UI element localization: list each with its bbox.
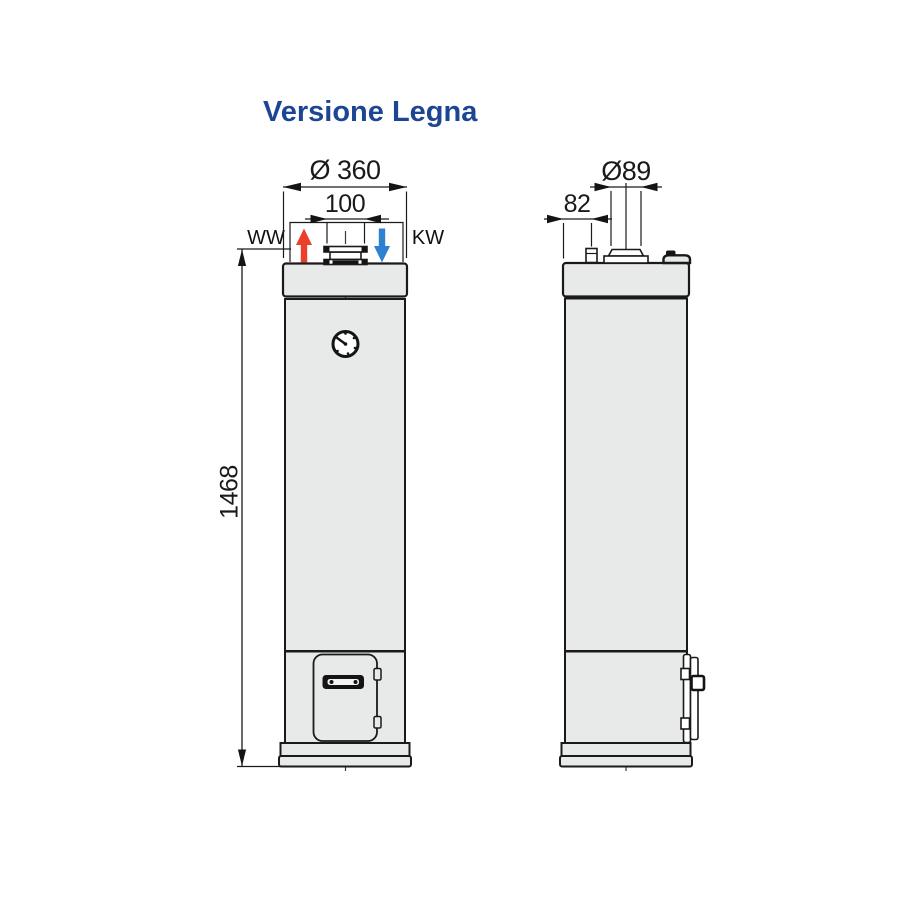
dome-cap: [664, 255, 691, 263]
base-ring-upper: [281, 743, 410, 756]
flue-offset-dimension: 82: [544, 190, 612, 259]
fitting-top-flange: [324, 247, 367, 253]
height-dimension: 1468: [216, 249, 292, 767]
front-connection-dimension: 100: [305, 190, 389, 244]
fitting-gasket: [333, 261, 359, 265]
dim-arrowhead: [389, 183, 407, 191]
gauge-tick: [336, 350, 339, 353]
fitting-neck: [330, 252, 361, 260]
door-cover-bar: [691, 658, 699, 740]
base-ring-upper: [562, 743, 691, 756]
top-flange-fitting: [324, 247, 367, 265]
dim-arrowhead: [592, 215, 609, 223]
tank-top-cap: [283, 264, 407, 297]
flue-offset-value: 82: [564, 190, 591, 218]
flange-bolt-icon: [362, 260, 367, 264]
door-hinge: [374, 669, 381, 681]
door-handle-side: [692, 676, 705, 690]
flange-bolt-icon: [325, 260, 330, 264]
gauge-tick: [353, 337, 356, 340]
firebox-section: [565, 652, 687, 744]
small-pipe-fitting: [586, 249, 597, 263]
flue-diameter-value: Ø89: [601, 156, 651, 186]
hinge-tab: [681, 669, 690, 680]
front-diameter-value: Ø 360: [309, 155, 380, 185]
dim-arrowhead: [238, 750, 246, 767]
front-connection-value: 100: [325, 190, 365, 218]
tank-top-cap: [563, 263, 689, 297]
dim-arrowhead: [238, 250, 246, 267]
ww-label: WW: [247, 227, 285, 249]
handle-screw: [330, 680, 334, 684]
flange-bolt-icon: [362, 247, 367, 252]
base-ring-lower: [279, 756, 411, 767]
flue-collar-base: [604, 256, 648, 263]
door-latch-side: [681, 655, 704, 743]
hinge-tab: [681, 718, 690, 729]
handle-screw: [354, 680, 358, 684]
dim-arrowhead: [547, 215, 564, 223]
ww-arrow-icon: [296, 229, 312, 263]
door-hinge: [374, 717, 381, 729]
height-value: 1468: [216, 465, 244, 519]
top-fittings: [586, 249, 690, 264]
thermometer-gauge-icon: [333, 332, 358, 357]
dome-cap-nub: [666, 251, 676, 257]
side-view: Ø89 82: [544, 156, 704, 771]
flange-bolt-icon: [325, 247, 330, 252]
gauge-tick: [354, 347, 357, 350]
dim-arrowhead: [283, 183, 301, 191]
page-title: Versione Legna: [263, 96, 478, 128]
gauge-tick: [347, 352, 350, 355]
kw-label: KW: [412, 227, 444, 249]
gauge-pivot: [344, 342, 348, 346]
kw-arrow-icon: [374, 229, 390, 263]
base-ring-lower: [560, 756, 692, 767]
boiler-diagram: Versione Legna: [0, 0, 900, 900]
door-panel: [314, 655, 378, 742]
technical-drawing-page: Versione Legna: [0, 0, 900, 900]
tank-body: [565, 299, 687, 652]
front-view: WW KW Ø 360 100 1468: [216, 155, 445, 771]
gauge-tick: [344, 332, 347, 335]
flue-collar-top: [609, 250, 644, 257]
firebox-door: [314, 655, 382, 742]
